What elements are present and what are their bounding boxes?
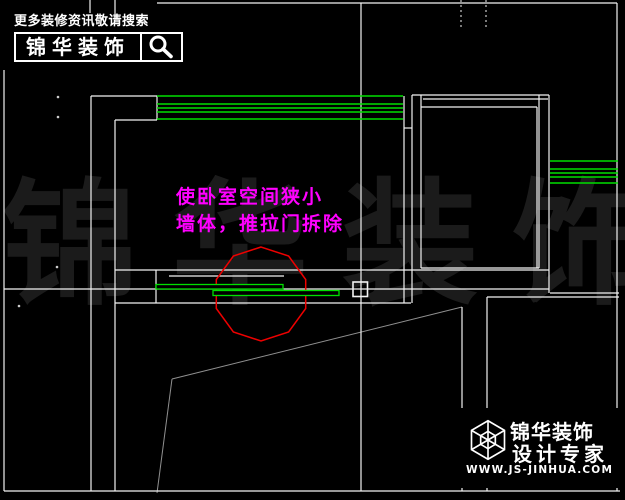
promo-tagline-text: 更多装修资讯敬请搜索 [14, 10, 183, 29]
cube-logo-icon [466, 417, 510, 467]
node-dot [56, 266, 59, 269]
sliding-door-panel [213, 291, 339, 296]
reference-line [172, 307, 462, 379]
annotation-line-2: 墙体，推拉门拆除 [176, 211, 344, 238]
node-dot [18, 305, 21, 308]
node-dot [57, 96, 60, 99]
demolition-annotation: 使卧室空间狭小 墙体，推拉门拆除 [176, 184, 344, 238]
promo-brand-box: 锦华装饰 [14, 32, 183, 62]
footer-logo: 锦华装饰 设计专家 WWW.JS-JINHUA.COM [456, 408, 624, 488]
reference-line [157, 379, 172, 493]
promo-brand-text: 锦华装饰 [16, 34, 140, 60]
node-dot [57, 116, 60, 119]
sliding-door-panel [156, 285, 283, 290]
footer-url-text: WWW.JS-JINHUA.COM [466, 464, 613, 476]
promo-logo: 更多装修资讯敬请搜索 锦华装饰 [14, 10, 183, 62]
annotation-line-1: 使卧室空间狭小 [176, 184, 344, 211]
cad-viewport[interactable]: 锦华装饰 使卧室空间狭小 墙体，推拉门拆除 更多装修资讯敬请搜索 锦华装饰 [0, 0, 625, 500]
search-icon [142, 34, 181, 60]
footer-subtitle-text: 设计专家 [512, 438, 608, 467]
